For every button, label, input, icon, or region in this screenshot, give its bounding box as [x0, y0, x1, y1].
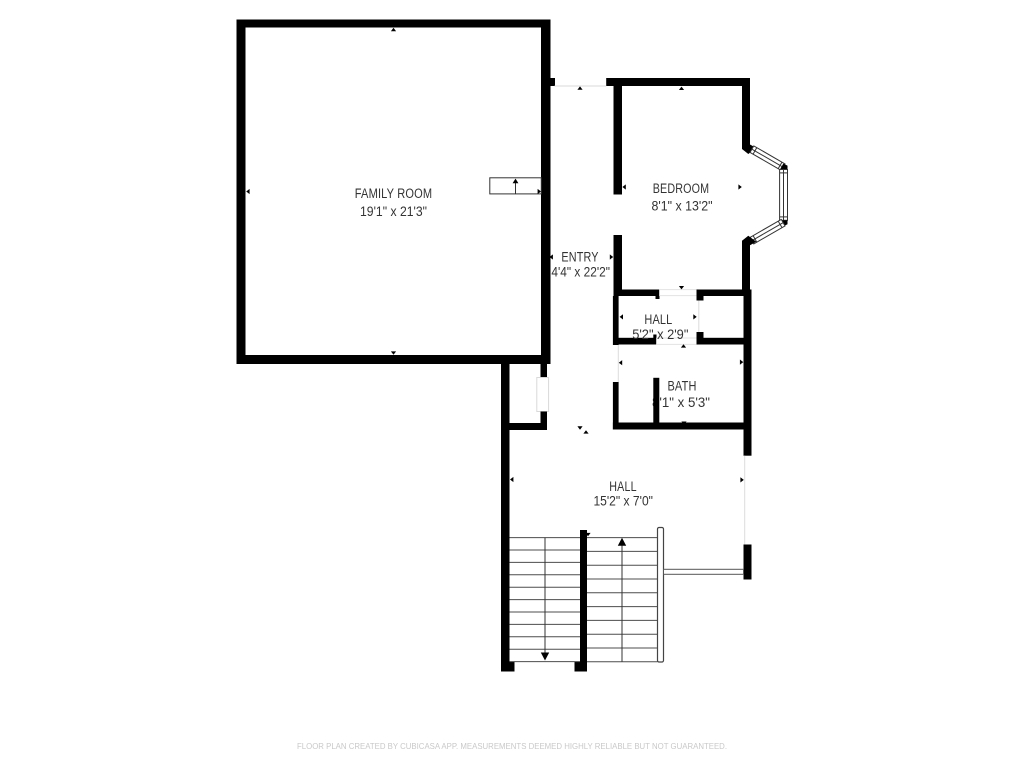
svg-text:8'1" x 5'3": 8'1" x 5'3": [652, 395, 710, 410]
svg-text:HALL: HALL: [609, 479, 637, 494]
svg-text:HALL: HALL: [644, 312, 672, 327]
svg-text:19'1" x 21'3": 19'1" x 21'3": [360, 204, 427, 219]
svg-text:4'4" x 22'2": 4'4" x 22'2": [551, 265, 610, 280]
svg-text:FAMILY ROOM: FAMILY ROOM: [355, 186, 433, 201]
svg-text:5'2" x 2'9": 5'2" x 2'9": [632, 327, 688, 342]
svg-text:BATH: BATH: [667, 378, 696, 393]
svg-text:BEDROOM: BEDROOM: [653, 181, 710, 196]
svg-text:15'2" x 7'0": 15'2" x 7'0": [593, 493, 653, 508]
svg-text:FLOOR PLAN CREATED BY CUBICASA: FLOOR PLAN CREATED BY CUBICASA APP. MEAS…: [297, 741, 727, 751]
svg-text:ENTRY: ENTRY: [561, 249, 598, 264]
svg-text:8'1" x 13'2": 8'1" x 13'2": [652, 199, 713, 214]
